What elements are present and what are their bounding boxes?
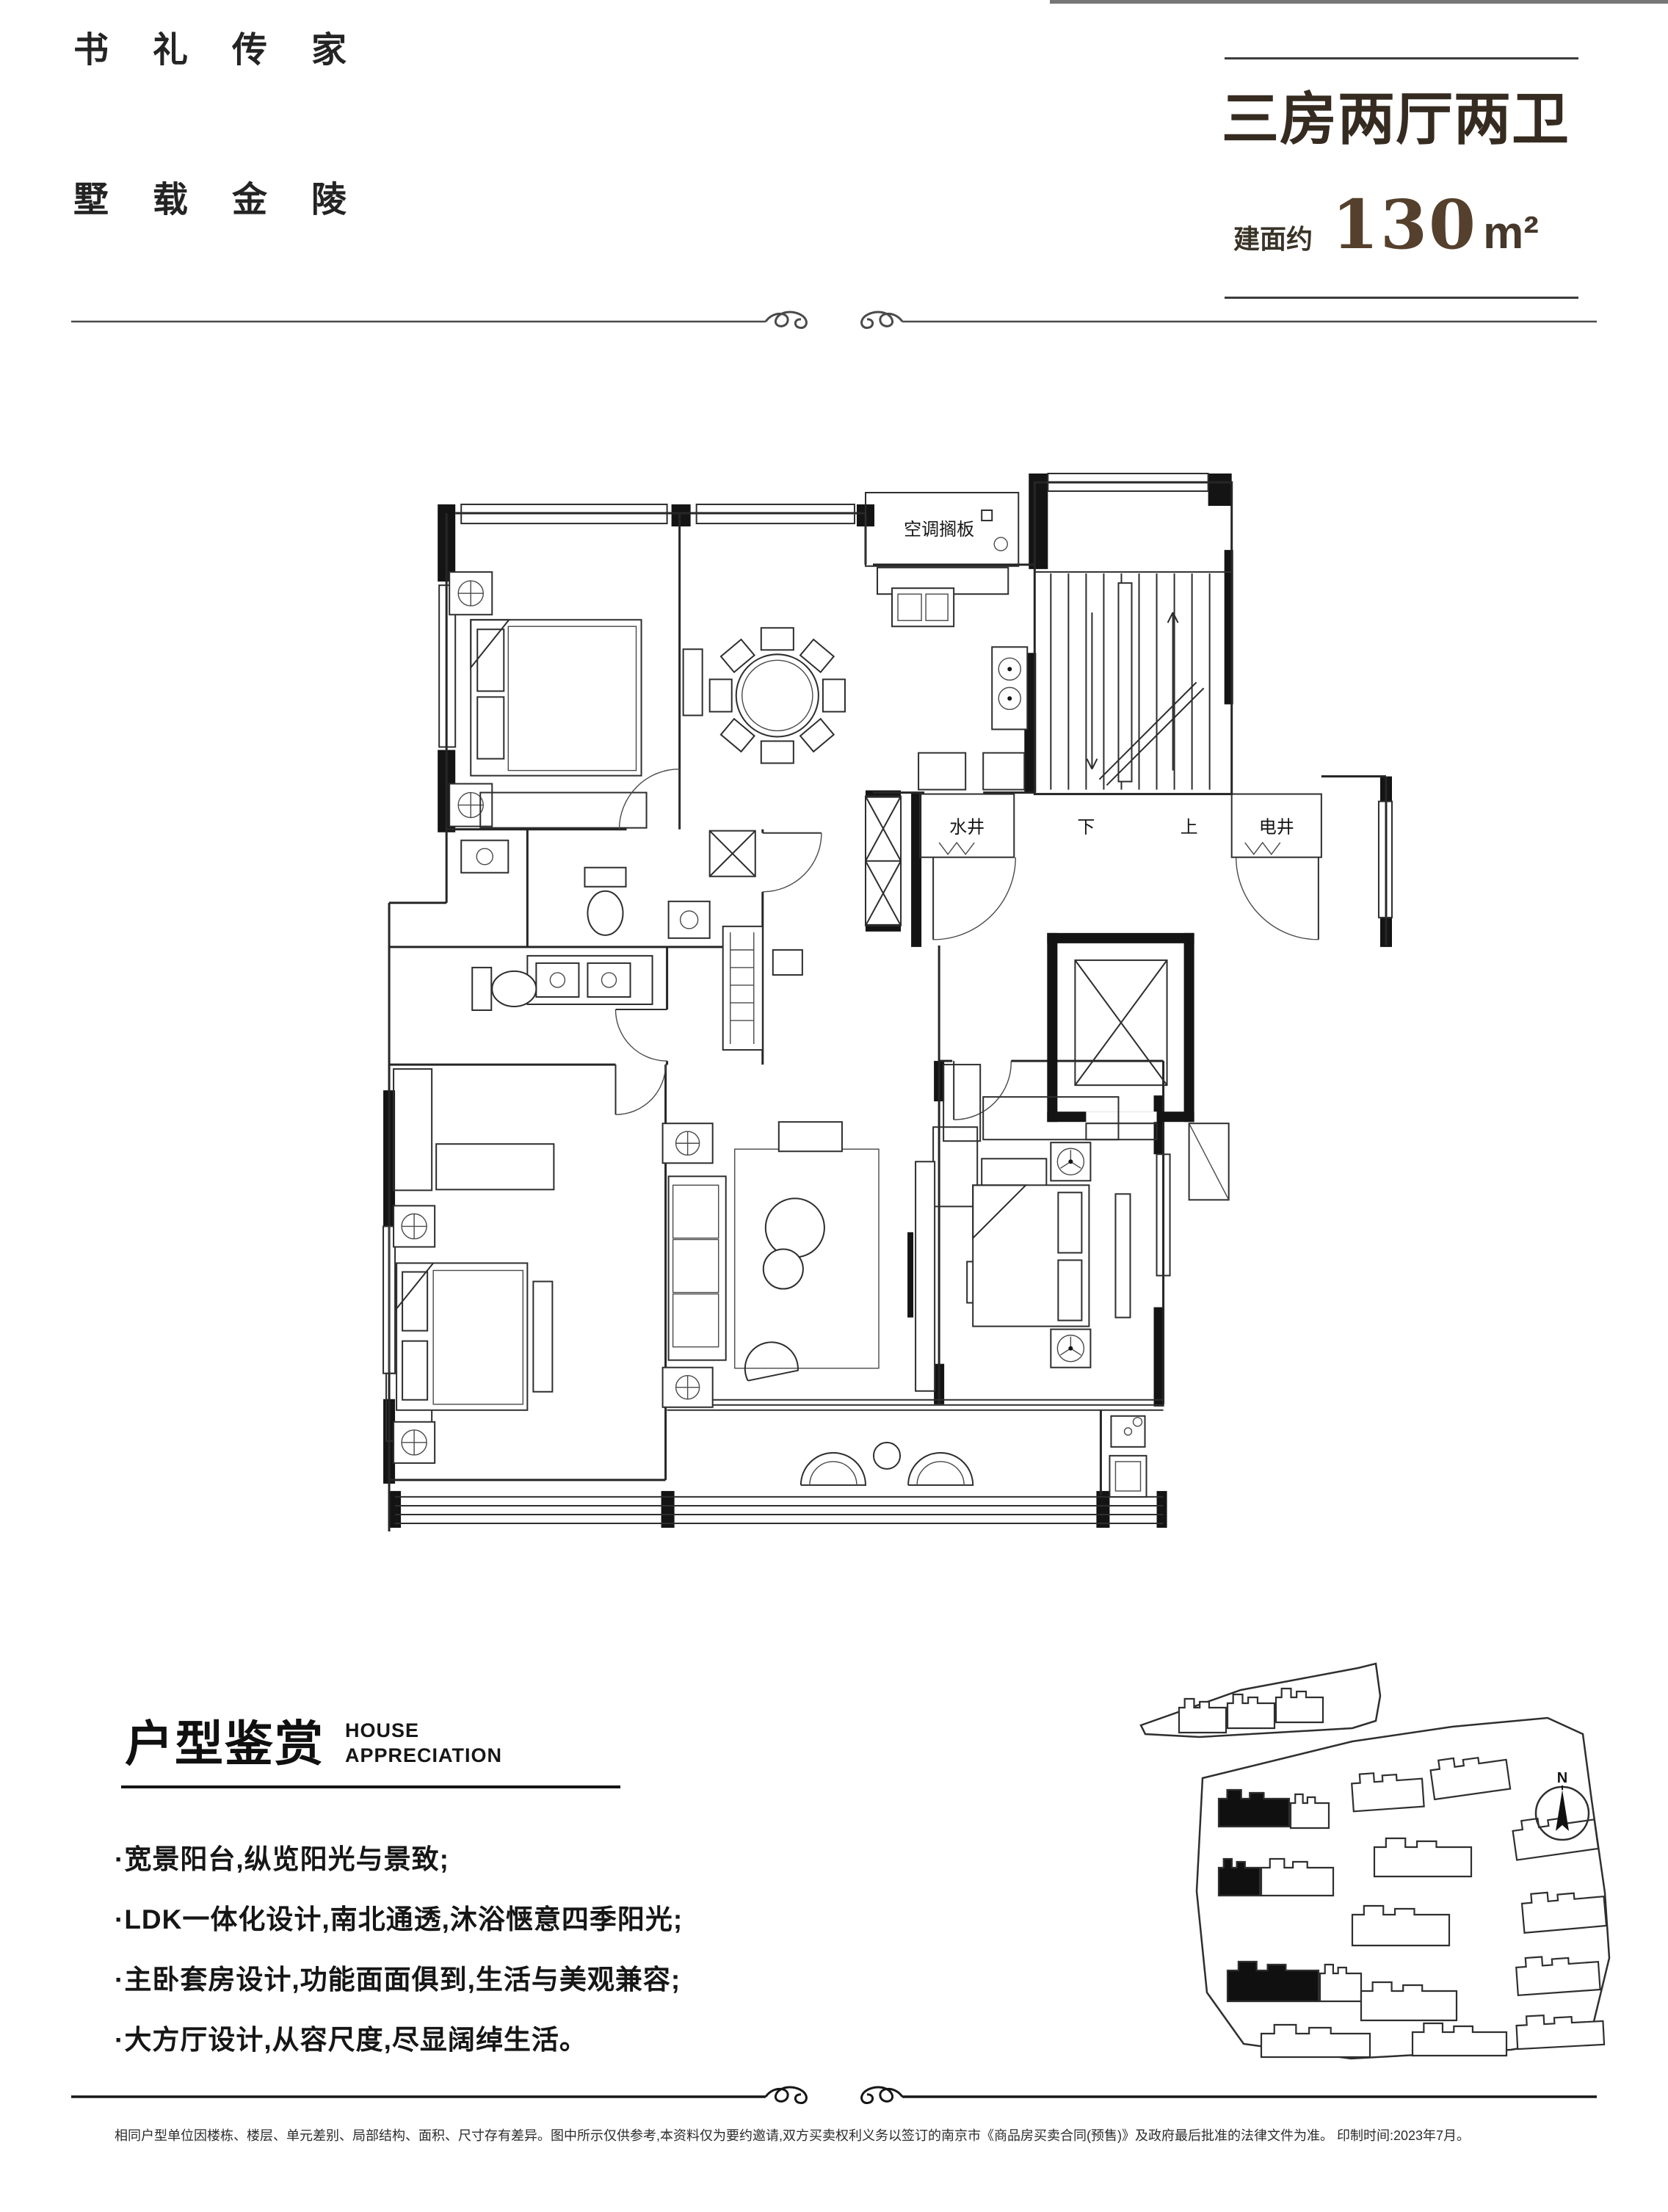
dining-area — [710, 628, 845, 763]
label-ac-shelf: 空调搁板 — [904, 520, 974, 540]
bedroom-1 — [449, 572, 702, 829]
site-building — [1413, 2023, 1506, 2056]
floor-plan: 空调搁板 水井 下 上 电井 — [351, 460, 1395, 1567]
site-building — [1361, 1982, 1457, 2020]
site-building-highlighted — [1219, 1790, 1289, 1827]
bathroom-1 — [461, 831, 822, 938]
master-bedroom — [394, 1065, 666, 1463]
site-building — [1516, 2012, 1604, 2049]
site-building — [1521, 1888, 1606, 1933]
section-title-en-line2: APPRECIATION — [345, 1743, 502, 1768]
disclaimer-text: 相同户型单位因楼栋、楼层、单元差别、局部结构、面积、尺寸存有差异。图中所示仅供参… — [115, 2125, 1470, 2144]
ornamental-divider-top — [68, 308, 1600, 335]
elevator — [1047, 933, 1194, 1139]
site-building — [1261, 1859, 1333, 1896]
entry-doors — [933, 857, 1319, 940]
bathroom-2 — [472, 956, 667, 1061]
hall-console — [723, 926, 802, 1050]
service-shafts: 水井 下 上 电井 — [920, 794, 1321, 857]
label-stairs-down: 下 — [1077, 818, 1095, 838]
unit-type-title: 三房两厅两卫 — [1222, 73, 1570, 156]
living-room — [663, 1122, 935, 1407]
site-building-highlighted — [1219, 1859, 1260, 1896]
unit-area-row: 建面约 130 m² — [1233, 185, 1539, 264]
site-building — [1374, 1838, 1471, 1876]
slogan-line2: 墅载金陵 — [73, 170, 391, 222]
section-title-en-line1: HOUSE — [345, 1718, 502, 1743]
site-building — [1179, 1699, 1226, 1733]
area-value: 130 — [1332, 185, 1477, 264]
site-building — [1429, 1751, 1510, 1799]
site-building — [1276, 1689, 1323, 1722]
site-map: N — [1132, 1646, 1646, 2068]
unit-info-bottom-rule — [1225, 297, 1578, 299]
bullet-item: ·宽景阳台,纵览阳光与景致; — [115, 1837, 449, 1876]
brochure-page: 书礼传家 墅载金陵 三房两厅两卫 建面约 130 m² — [0, 0, 1668, 2212]
scan-edge-artifact — [1050, 0, 1668, 4]
site-building — [1291, 1794, 1329, 1828]
label-stairs-up: 上 — [1181, 818, 1198, 838]
area-label: 建面约 — [1233, 218, 1313, 256]
area-unit: m² — [1483, 207, 1539, 259]
label-water-shaft: 水井 — [949, 818, 985, 838]
site-building — [1512, 1810, 1598, 1860]
site-building — [1515, 1953, 1600, 1995]
section-underline — [121, 1785, 620, 1788]
site-building — [1228, 1694, 1274, 1728]
compass-north-label: N — [1557, 1770, 1567, 1786]
unit-info-top-rule — [1225, 57, 1578, 59]
site-building-highlighted — [1228, 1962, 1319, 2001]
site-building — [1320, 1965, 1361, 2001]
balcony — [801, 1416, 1147, 1497]
site-building — [1351, 1770, 1424, 1812]
bullet-item: ·大方厅设计,从容尺度,尽显阔绰生活。 — [115, 2017, 587, 2057]
slogan-line1: 书礼传家 — [73, 21, 391, 72]
bullet-item: ·主卧套房设计,功能面面俱到,生活与美观兼容; — [115, 1957, 681, 1997]
bullet-item: ·LDK一体化设计,南北通透,沐浴惬意四季阳光; — [115, 1897, 683, 1937]
label-electric-shaft: 电井 — [1259, 818, 1294, 838]
site-buildings — [1179, 1689, 1606, 2057]
kitchen — [892, 588, 1027, 789]
section-title-en: HOUSE APPRECIATION — [345, 1718, 502, 1768]
ornamental-divider-bottom — [68, 2084, 1600, 2110]
section-title-cn: 户型鉴赏 — [125, 1705, 324, 1775]
stairwell — [1034, 572, 1231, 789]
site-building — [1261, 2025, 1370, 2057]
site-building — [1352, 1906, 1449, 1946]
